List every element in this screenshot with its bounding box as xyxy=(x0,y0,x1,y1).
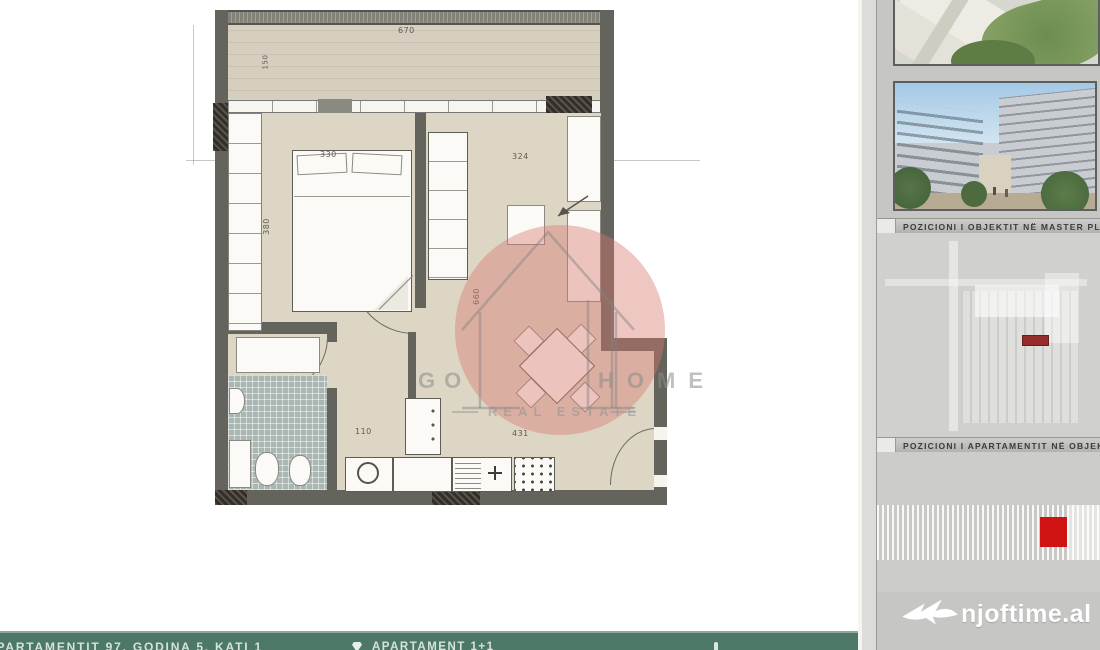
dim-kitchen-nook: 110 xyxy=(355,427,372,436)
balcony-floor xyxy=(227,25,602,103)
stove xyxy=(514,457,555,492)
building-elevation xyxy=(877,452,1100,592)
render-tree-3 xyxy=(1041,171,1089,211)
dim-living-depth: 660 xyxy=(472,288,481,305)
masterplan-red-marker xyxy=(1022,335,1049,346)
bathroom-counter xyxy=(229,440,251,488)
bottom-bar-apartment-type: APARTAMENT 1+1 xyxy=(372,641,495,650)
left-wall xyxy=(215,10,228,505)
washing-machine-drum xyxy=(357,462,379,484)
coffee-table xyxy=(507,205,545,245)
bathroom-right-wall-upper xyxy=(327,322,337,342)
map-road-vertical xyxy=(949,241,958,431)
sofa xyxy=(428,132,468,280)
dim-living-width: 324 xyxy=(512,152,529,161)
balcony-top-wall xyxy=(215,10,614,25)
thumbnail-aerial-render xyxy=(893,0,1100,66)
elevation-right-light xyxy=(1067,505,1100,560)
faucet-cross-v xyxy=(494,466,496,480)
bed-fold xyxy=(374,276,408,310)
caption-apartment-text: POZICIONI I APARTAMENTIT NË OBJEKT xyxy=(903,441,1100,451)
bidet xyxy=(289,455,311,486)
balcony-right-wall xyxy=(600,10,614,113)
bottom-title-bar: APARTAMENTIT 97, GODINA 5, KATI 1 APARTA… xyxy=(0,631,858,650)
njoftime-logo: njoftime.al xyxy=(901,590,1097,638)
dim-kitchen-run: 431 xyxy=(512,429,529,438)
bottom-dark-block-left xyxy=(215,490,247,505)
thumbnail-street-render xyxy=(893,81,1097,211)
masterplan-map xyxy=(877,233,1100,437)
dim-bedroom-depth: 380 xyxy=(262,218,271,235)
bottom-dark-block-mid xyxy=(432,490,480,505)
wardrobe xyxy=(228,113,262,331)
entry-door-frame-top xyxy=(654,427,667,440)
bedroom-living-wall xyxy=(415,113,426,308)
render-person-2 xyxy=(1005,189,1008,197)
floor-plan: 670 150 330 380 324 660 110 431 xyxy=(0,0,860,650)
bathroom-sink xyxy=(229,388,245,414)
sidebar: POZICIONI I OBJEKTIT NË MASTER PLAN POZI… xyxy=(877,0,1100,650)
tv-unit-top xyxy=(567,116,601,202)
toilet xyxy=(255,452,279,486)
bottom-bar-left-label: APARTAMENTIT 97, GODINA 5, KATI 1 xyxy=(0,640,263,650)
bathroom-right-wall-lower xyxy=(327,388,337,490)
listing-flyer: 670 150 330 380 324 660 110 431 GO HOME … xyxy=(0,0,1100,650)
divider-tick-icon xyxy=(714,642,718,650)
fridge-controls xyxy=(430,404,437,450)
balcony-window-band xyxy=(228,100,600,113)
caption-masterplan-text: POZICIONI I OBJEKTIT NË MASTER PLAN xyxy=(903,222,1100,232)
dim-balcony-depth: 150 xyxy=(261,55,269,70)
shower-tub xyxy=(236,337,320,373)
dim-bedroom-width: 330 xyxy=(320,150,337,159)
bird-icon xyxy=(901,594,959,634)
living-right-wall xyxy=(601,110,614,338)
njoftime-logo-text: njoftime.al xyxy=(961,600,1092,629)
pillow-right xyxy=(352,153,403,176)
caption-chip xyxy=(877,219,896,234)
pin-icon xyxy=(352,642,362,650)
render-person-1 xyxy=(993,187,996,195)
apartment-red-marker xyxy=(1040,517,1067,547)
render-tree-2 xyxy=(961,181,987,207)
map-building-block-2 xyxy=(1045,273,1079,343)
dim-line-vertical-left xyxy=(193,25,194,165)
entry-door-frame-bottom xyxy=(654,475,667,487)
drying-rack xyxy=(455,460,481,489)
pointer-arrow xyxy=(550,192,592,224)
caption-chip-2 xyxy=(877,438,896,453)
blanket-line xyxy=(294,196,410,197)
sidebar-separator xyxy=(858,0,877,650)
kitchen-counter xyxy=(393,457,452,492)
dim-balcony-width: 670 xyxy=(398,26,415,35)
window-pier xyxy=(318,99,352,113)
